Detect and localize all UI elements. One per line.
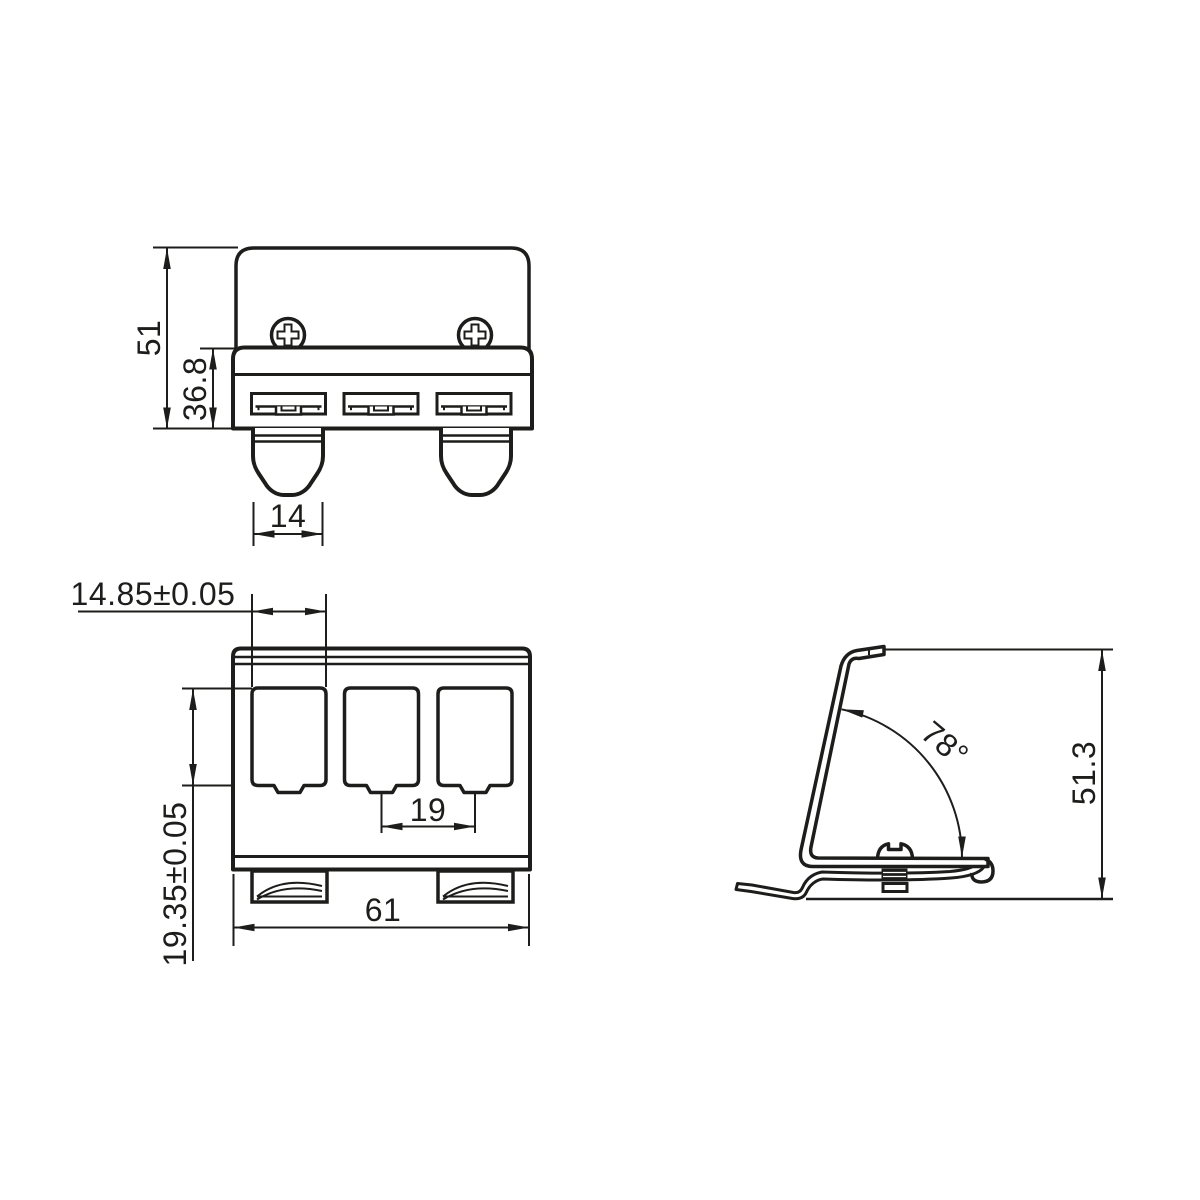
module-slot-1	[252, 394, 326, 415]
angle-arc: 78°	[842, 709, 976, 858]
dim-latch-width: 14	[254, 498, 323, 546]
module-opening-3	[438, 688, 512, 793]
arrow-arc-top	[842, 709, 864, 717]
dim-label: 19.35±0.05	[157, 802, 193, 967]
din-latch-left	[253, 428, 323, 495]
dim-label: 61	[365, 892, 402, 928]
arrow-down	[163, 408, 171, 429]
nut-block	[882, 869, 908, 882]
technical-drawing: 51 36.8 14	[0, 0, 1200, 1200]
arrow-left	[234, 924, 255, 932]
arrow-right	[305, 608, 326, 616]
dim-label-angle: 78°	[914, 714, 975, 774]
arrow-left	[252, 608, 273, 616]
module-slot-3	[437, 394, 511, 415]
side-view: 78° 51.3	[736, 647, 1113, 900]
arrow-up	[189, 689, 197, 710]
dim-label: 36.8	[177, 357, 213, 421]
latch-bar	[233, 348, 532, 429]
spring-clip	[736, 864, 984, 899]
drawing-canvas: 51 36.8 14	[0, 0, 1200, 1200]
module-slot-2	[344, 394, 418, 415]
arrow-down	[189, 764, 197, 785]
arrow-arc-bottom	[958, 837, 966, 858]
arrow-up	[1098, 650, 1106, 671]
arrow-up	[163, 248, 171, 269]
washer-block	[883, 884, 907, 892]
dim-label: 14.85±0.05	[71, 576, 236, 612]
latch-outline	[441, 428, 511, 495]
front-view: 14.85±0.05 19.35±0.05 19 61	[71, 576, 530, 966]
module-opening-2	[345, 688, 419, 793]
latch-outline	[253, 428, 323, 495]
arrow-right	[508, 924, 529, 932]
dim-label: 19	[410, 792, 447, 828]
arrow-down	[1098, 878, 1106, 899]
screw-head-profile	[878, 844, 913, 859]
dim-label: 51.3	[1066, 741, 1102, 805]
dim-label: 14	[270, 498, 307, 534]
module-opening-1	[252, 688, 326, 793]
mounting-foot-right	[438, 871, 513, 902]
dim-label: 51	[131, 320, 167, 357]
top-view: 51 36.8 14	[131, 248, 532, 547]
din-latch-right	[441, 428, 511, 495]
mounting-foot-left	[252, 871, 327, 902]
